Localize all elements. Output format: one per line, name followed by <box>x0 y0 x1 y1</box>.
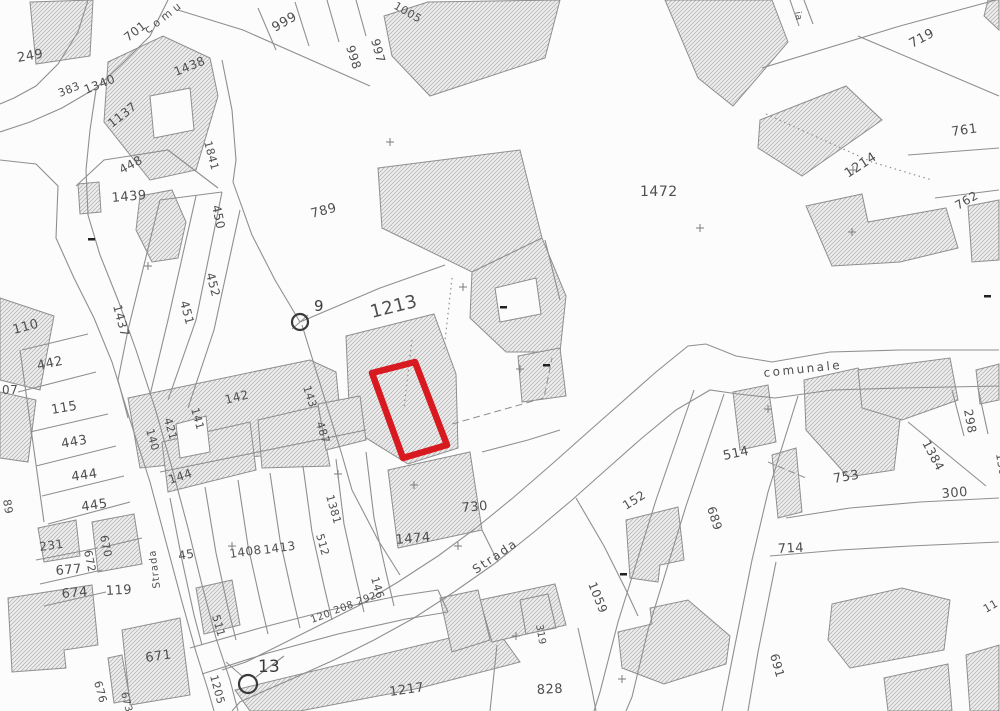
parcel-label: 1213 <box>368 291 419 323</box>
parcel-label: 1439 <box>111 188 147 206</box>
parcel-label: 1205 <box>207 673 227 705</box>
parcel-label: 445 <box>80 496 108 515</box>
parcel-label: 514 <box>722 444 751 464</box>
parcel-label: 674 <box>61 585 89 602</box>
parcel-label: 292 <box>355 590 378 607</box>
parcel-label: 298 <box>961 408 979 434</box>
parcel-label: 07 <box>2 383 18 397</box>
parcel-label: 999 <box>270 9 300 35</box>
scan-mark <box>88 238 95 241</box>
boundary-line <box>482 430 560 452</box>
parcel-label: 730 <box>461 499 489 516</box>
building-shape <box>480 584 566 642</box>
corner-cross-icon <box>144 262 152 270</box>
parcel-label: 753 <box>832 468 861 487</box>
map-viewport[interactable]: 9132497013831340143811371841999998997100… <box>0 0 1000 711</box>
parcel-label: 1384 <box>919 438 947 473</box>
parcel-label: 1474 <box>395 530 431 548</box>
boundary-line <box>327 0 339 42</box>
building-shape <box>626 507 684 582</box>
parcel-label: 1413 <box>262 539 296 557</box>
corner-cross-icon <box>696 224 704 232</box>
parcel-label: 512 <box>313 532 332 557</box>
corner-cross-icon <box>386 138 394 146</box>
boundary-line <box>356 0 366 36</box>
parcel-label: 383 <box>56 79 82 99</box>
boundary-line <box>762 0 996 68</box>
boundary-line <box>908 148 999 155</box>
boundary-line <box>748 562 776 711</box>
building-shape <box>346 314 458 464</box>
parcel-label: 1472 <box>640 184 678 200</box>
building-shape <box>884 664 952 711</box>
parcel-label: 998 <box>343 44 364 72</box>
corner-cross-icon <box>334 470 342 478</box>
parcel-label: 1059 <box>585 580 610 615</box>
boundary-line <box>578 628 596 711</box>
survey-point-label: 9 <box>314 297 324 315</box>
parcel-label: 120 <box>309 608 332 625</box>
parcel-label: 452 <box>203 271 223 298</box>
parcel-label: 1214 <box>842 150 880 182</box>
parcel-label: ia <box>792 11 803 22</box>
street-name-label: Strada <box>470 536 521 576</box>
building-shape <box>618 600 730 684</box>
boundary-line <box>804 0 813 24</box>
parcel-label: 152 <box>620 488 648 513</box>
parcel-label: 828 <box>536 682 563 698</box>
building-shape <box>828 588 950 668</box>
boundary-line <box>295 2 309 46</box>
parcel-label: 997 <box>368 37 388 64</box>
parcel-label: 451 <box>177 299 197 326</box>
survey-points-layer: 913 <box>239 297 324 693</box>
cadastral-map[interactable]: 9132497013831340143811371841999998997100… <box>0 0 1000 711</box>
parcel-label: 45 <box>177 546 195 563</box>
building-courtyard <box>150 88 194 138</box>
street-name-label: Strada <box>147 549 163 589</box>
parcel-label: 691 <box>767 652 787 679</box>
corner-cross-icon <box>618 675 626 683</box>
parcel-label: 450 <box>209 204 228 231</box>
parcel-label: 300 <box>941 485 969 502</box>
boundary-line <box>222 60 236 182</box>
building-shape <box>984 0 999 30</box>
parcel-label: 208 <box>332 599 355 616</box>
parcel-label: 689 <box>704 505 725 533</box>
building-shape <box>665 0 788 106</box>
scan-mark <box>620 573 627 576</box>
boundary-line <box>233 182 300 322</box>
building-shape <box>772 448 802 518</box>
scan-mark <box>500 306 507 309</box>
boundary-line <box>786 498 999 518</box>
parcel-label: 319 <box>533 624 547 646</box>
building-shape <box>78 182 101 214</box>
parcel-label: 444 <box>70 466 98 485</box>
parcel-label: 677 <box>55 562 83 579</box>
building-shape <box>968 200 999 262</box>
parcel-label: 676 <box>91 679 109 704</box>
parcel-label: 761 <box>950 121 978 140</box>
scan-mark <box>984 295 991 298</box>
boundary-line <box>858 36 999 96</box>
parcel-label: 789 <box>309 201 338 222</box>
boundary-line <box>30 414 108 432</box>
parcel-label: 719 <box>907 26 937 52</box>
street-name-label: comu <box>142 0 187 36</box>
building-shape <box>806 194 958 266</box>
parcel-label: 115 <box>50 399 79 418</box>
parcel-label: 11 <box>981 597 1000 616</box>
building-shape <box>733 385 776 450</box>
building-shape <box>966 645 999 711</box>
parcel-label: 119 <box>105 583 132 599</box>
parcel-label: 130 <box>993 452 1000 476</box>
parcel-label: 1841 <box>201 139 221 171</box>
dotted-boundary-line <box>444 278 452 350</box>
parcel-label: 89 <box>0 498 15 515</box>
parcel-label: 1408 <box>228 543 262 561</box>
parcel-label: 443 <box>60 433 89 452</box>
parcel-label: 714 <box>777 541 804 557</box>
building-shape <box>518 348 566 402</box>
parcel-label: 1437 <box>110 303 132 338</box>
scan-mark <box>543 364 550 367</box>
buildings-layer <box>0 0 999 711</box>
corner-cross-icon <box>459 283 467 291</box>
survey-point-label: 13 <box>258 657 280 677</box>
building-shape <box>976 364 999 404</box>
